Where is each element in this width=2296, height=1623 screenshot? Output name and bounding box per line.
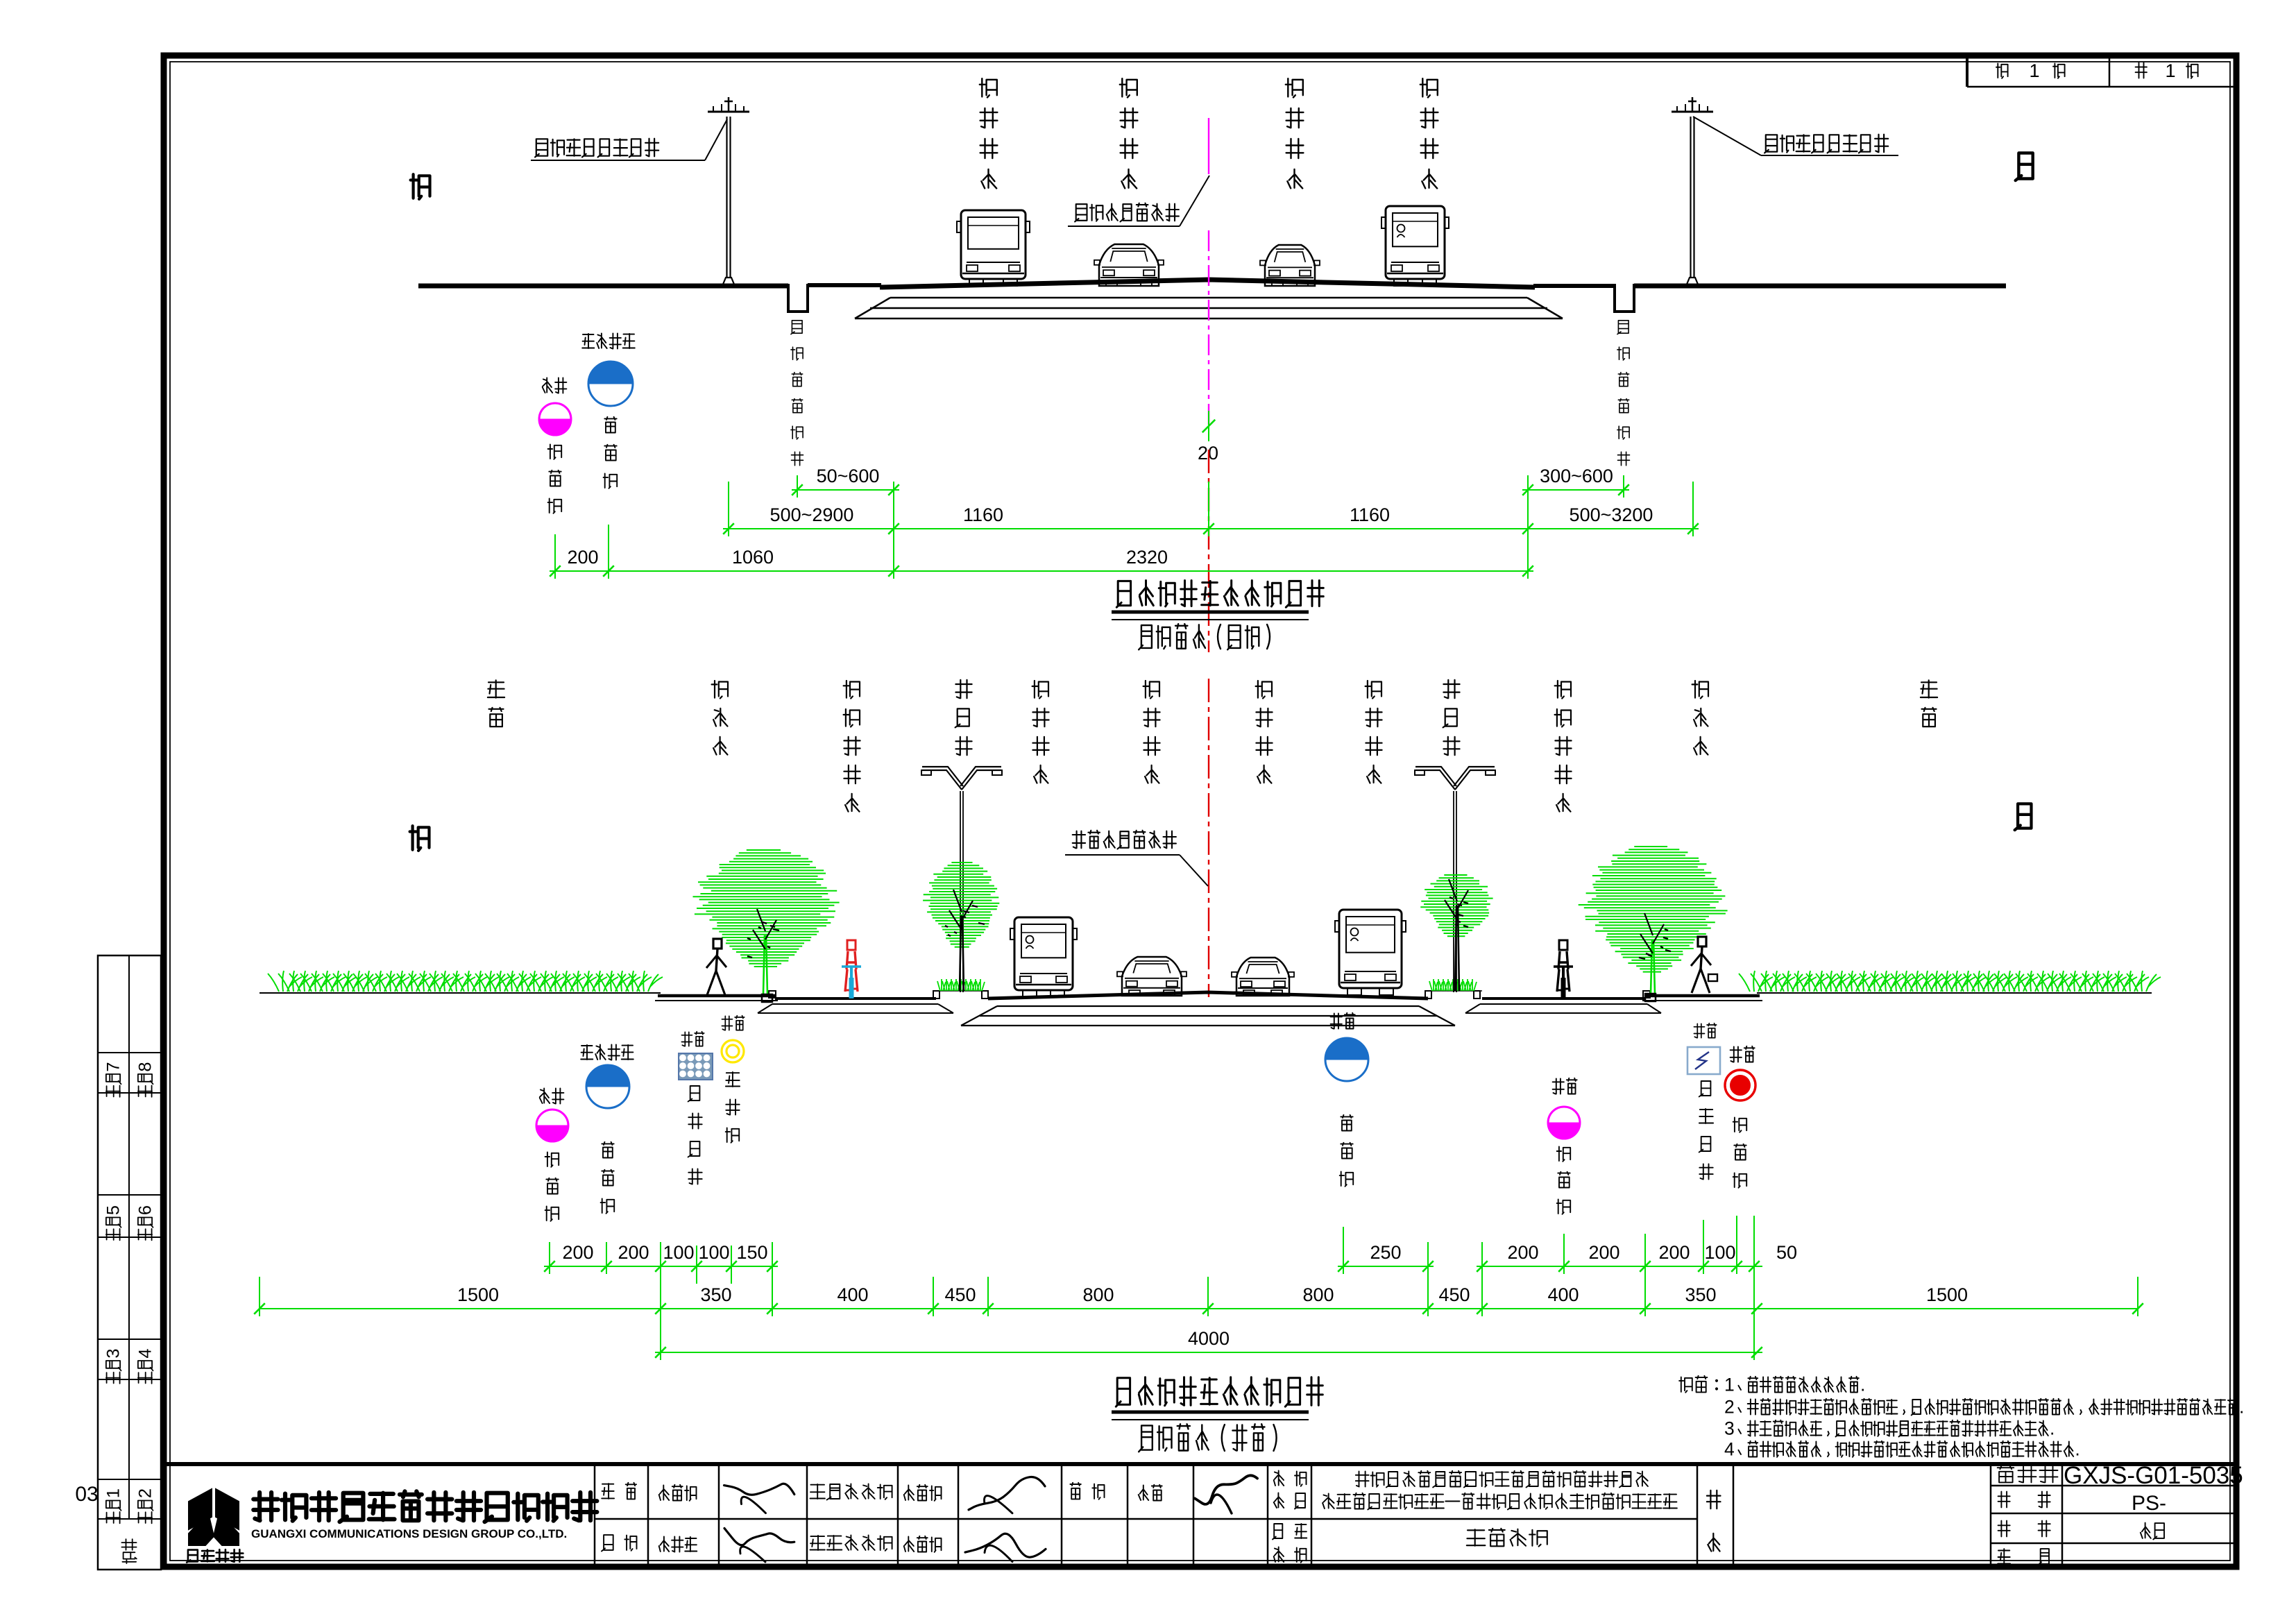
svg-text:100: 100 [663, 1242, 694, 1263]
svg-text:200: 200 [618, 1242, 649, 1263]
svg-text:.: . [2239, 1397, 2244, 1418]
svg-text:500~2900: 500~2900 [770, 504, 854, 525]
svg-text:1: 1 [104, 1488, 124, 1498]
svg-text:1500: 1500 [1926, 1284, 1968, 1305]
svg-text:100: 100 [698, 1242, 729, 1263]
svg-text:4000: 4000 [1188, 1328, 1230, 1349]
svg-text:100: 100 [1704, 1242, 1735, 1263]
svg-text:GXJS-G01-5035: GXJS-G01-5035 [2064, 1462, 2243, 1489]
svg-text:3: 3 [104, 1348, 124, 1358]
svg-text:1160: 1160 [963, 504, 1003, 525]
svg-text:50~600: 50~600 [817, 466, 880, 486]
svg-text:1: 1 [2165, 60, 2175, 81]
svg-text:800: 800 [1302, 1284, 1334, 1305]
svg-text:4: 4 [136, 1348, 155, 1358]
svg-text:.: . [1860, 1375, 1865, 1395]
svg-text:450: 450 [1438, 1284, 1470, 1305]
svg-text:2: 2 [1724, 1397, 1735, 1418]
svg-text:03: 03 [75, 1483, 98, 1506]
svg-text:250: 250 [1370, 1242, 1401, 1263]
svg-text:1500: 1500 [457, 1284, 499, 1305]
svg-text:150: 150 [736, 1242, 767, 1263]
svg-text:50: 50 [1776, 1242, 1797, 1263]
svg-text:350: 350 [700, 1284, 731, 1305]
svg-text:500~3200: 500~3200 [1570, 504, 1653, 525]
svg-text:.: . [2050, 1418, 2055, 1439]
svg-text:2320: 2320 [1126, 547, 1168, 568]
svg-text:200: 200 [562, 1242, 593, 1263]
svg-text:1: 1 [1724, 1375, 1735, 1395]
svg-text:5: 5 [104, 1205, 124, 1215]
svg-text:PS-: PS- [2132, 1492, 2166, 1515]
svg-text:800: 800 [1082, 1284, 1114, 1305]
svg-text:350: 350 [1685, 1284, 1716, 1305]
svg-text:7: 7 [104, 1062, 124, 1071]
svg-text:3: 3 [1724, 1418, 1735, 1439]
svg-text:4: 4 [1724, 1439, 1735, 1460]
svg-text:1060: 1060 [732, 547, 774, 568]
svg-text:2: 2 [136, 1488, 155, 1498]
svg-text:200: 200 [1658, 1242, 1690, 1263]
svg-text:200: 200 [1588, 1242, 1619, 1263]
svg-text:200: 200 [567, 547, 598, 568]
svg-text:GUANGXI COMMUNICATIONS DESIGN: GUANGXI COMMUNICATIONS DESIGN GROUP CO.,… [251, 1527, 567, 1540]
svg-text:1: 1 [2029, 60, 2039, 81]
svg-text:6: 6 [136, 1205, 155, 1215]
svg-text:.: . [2075, 1439, 2080, 1460]
svg-text:200: 200 [1507, 1242, 1538, 1263]
svg-text:450: 450 [944, 1284, 976, 1305]
svg-text:1160: 1160 [1350, 504, 1390, 525]
svg-text:8: 8 [136, 1062, 155, 1071]
svg-text:400: 400 [1547, 1284, 1579, 1305]
svg-text:300~600: 300~600 [1540, 466, 1613, 486]
svg-text:400: 400 [837, 1284, 868, 1305]
